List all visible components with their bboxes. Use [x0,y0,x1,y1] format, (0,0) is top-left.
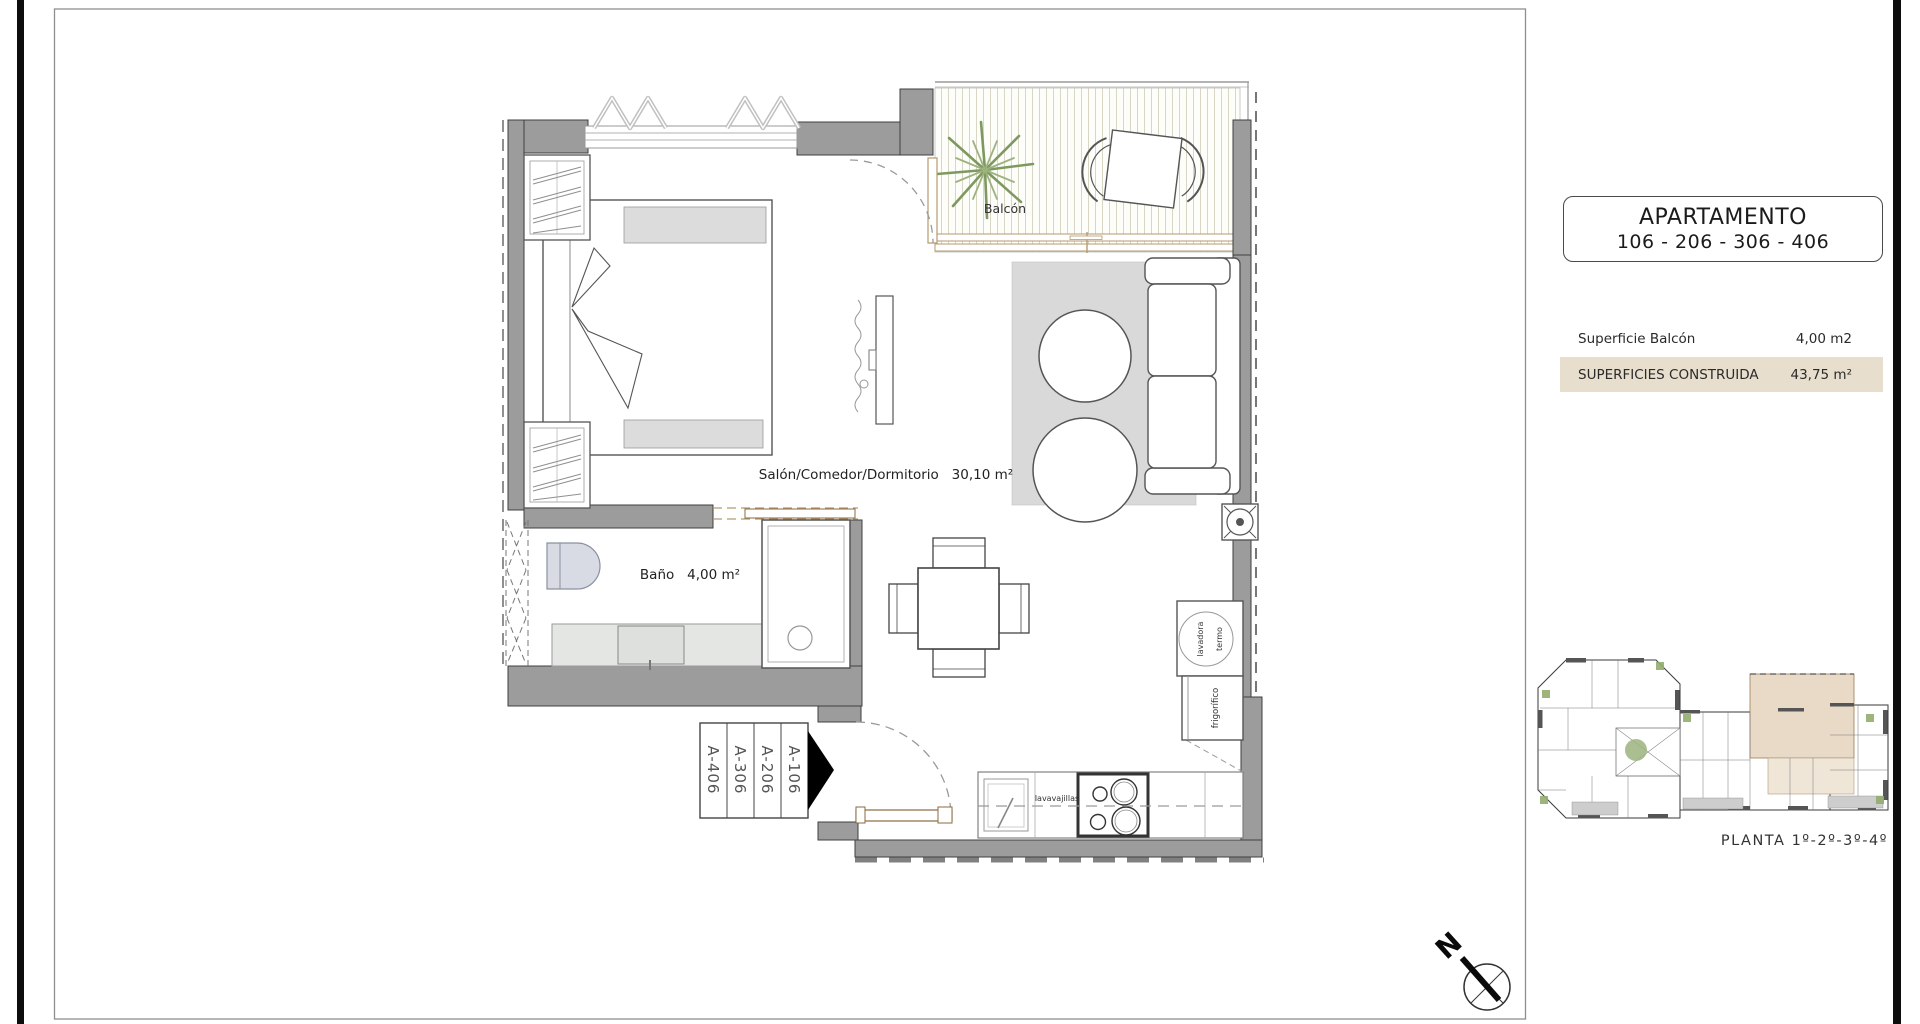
balcony-label: Balcón [984,201,1026,216]
wardrobe-top [524,155,590,240]
unit-tag: A-406 [704,746,722,795]
living-label: Salón/Comedor/Dormitorio 30,10 m² [759,467,1013,483]
toilet [547,543,600,589]
fridge-label: frigorífico [1211,688,1221,729]
kitchen-sink [984,779,1028,831]
washer-heater: lavadora termo [1177,601,1243,676]
ac-unit [1222,504,1258,540]
sink [618,626,684,664]
title-block-line1: APARTAMENTO [1639,204,1807,232]
bathroom-sliding-door [713,508,858,519]
surface-row-built: SUPERFICIES CONSTRUIDA 43,75 m² [1560,357,1883,392]
entrance-door [856,722,952,823]
page-edge-right [1893,0,1901,1024]
north-arrow-icon: N [1429,926,1510,1010]
unit-tag: A-106 [785,746,803,795]
drawing-sheet: Balcón [0,0,1920,1024]
page-edge-left [17,0,24,1024]
balcony: Balcón [935,82,1249,253]
washer-label: lavadora [1196,621,1205,656]
coffee-table [1039,310,1131,402]
entrance-arrow-icon [808,731,834,810]
bathroom-label: Baño 4,00 m² [640,567,740,583]
unit-tag: A-306 [731,746,749,795]
unit-tag: A-206 [758,746,776,795]
dishwasher-label: lavavajillas [1035,794,1079,803]
surface-row-balcony: Superficie Balcón 4,00 m2 [1560,328,1883,350]
dining-set [889,538,1029,677]
cooktop [1078,774,1148,836]
title-block-line2: 106 - 206 - 306 - 406 [1617,231,1829,254]
sofa [1145,258,1240,494]
surface-row-value: 4,00 m2 [1796,331,1852,347]
key-plan-highlight [1750,674,1854,758]
unit-tag-box: A-406 A-306 A-206 A-106 [700,723,834,818]
key-plan-caption: PLANTA 1º-2º-3º-4º [1650,833,1888,849]
surface-row-label: Superficie Balcón [1578,331,1695,347]
wardrobe-bottom [524,422,590,508]
shower [762,520,850,668]
kitchen: lavadora termo frigorífico lavavajillas [978,601,1243,838]
bedroom-window [585,98,799,148]
tv-unit [855,296,893,424]
fridge: frigorífico [1182,676,1243,740]
floor-plan-drawing: Balcón [0,0,1920,1024]
key-plan [1538,658,1888,819]
living-room: Salón/Comedor/Dormitorio 30,10 m² [759,258,1258,540]
bathroom: Baño 4,00 m² [506,508,858,670]
coffee-table-2 [1033,418,1137,522]
surface-row-label: SUPERFICIES CONSTRUIDA [1578,367,1759,383]
title-block: APARTAMENTO 106 - 206 - 306 - 406 [1563,196,1883,262]
surface-row-value: 43,75 m² [1790,367,1852,383]
curtain-squiggle [855,300,861,412]
water-heater-label: termo [1215,627,1224,651]
balcony-door [850,158,937,243]
